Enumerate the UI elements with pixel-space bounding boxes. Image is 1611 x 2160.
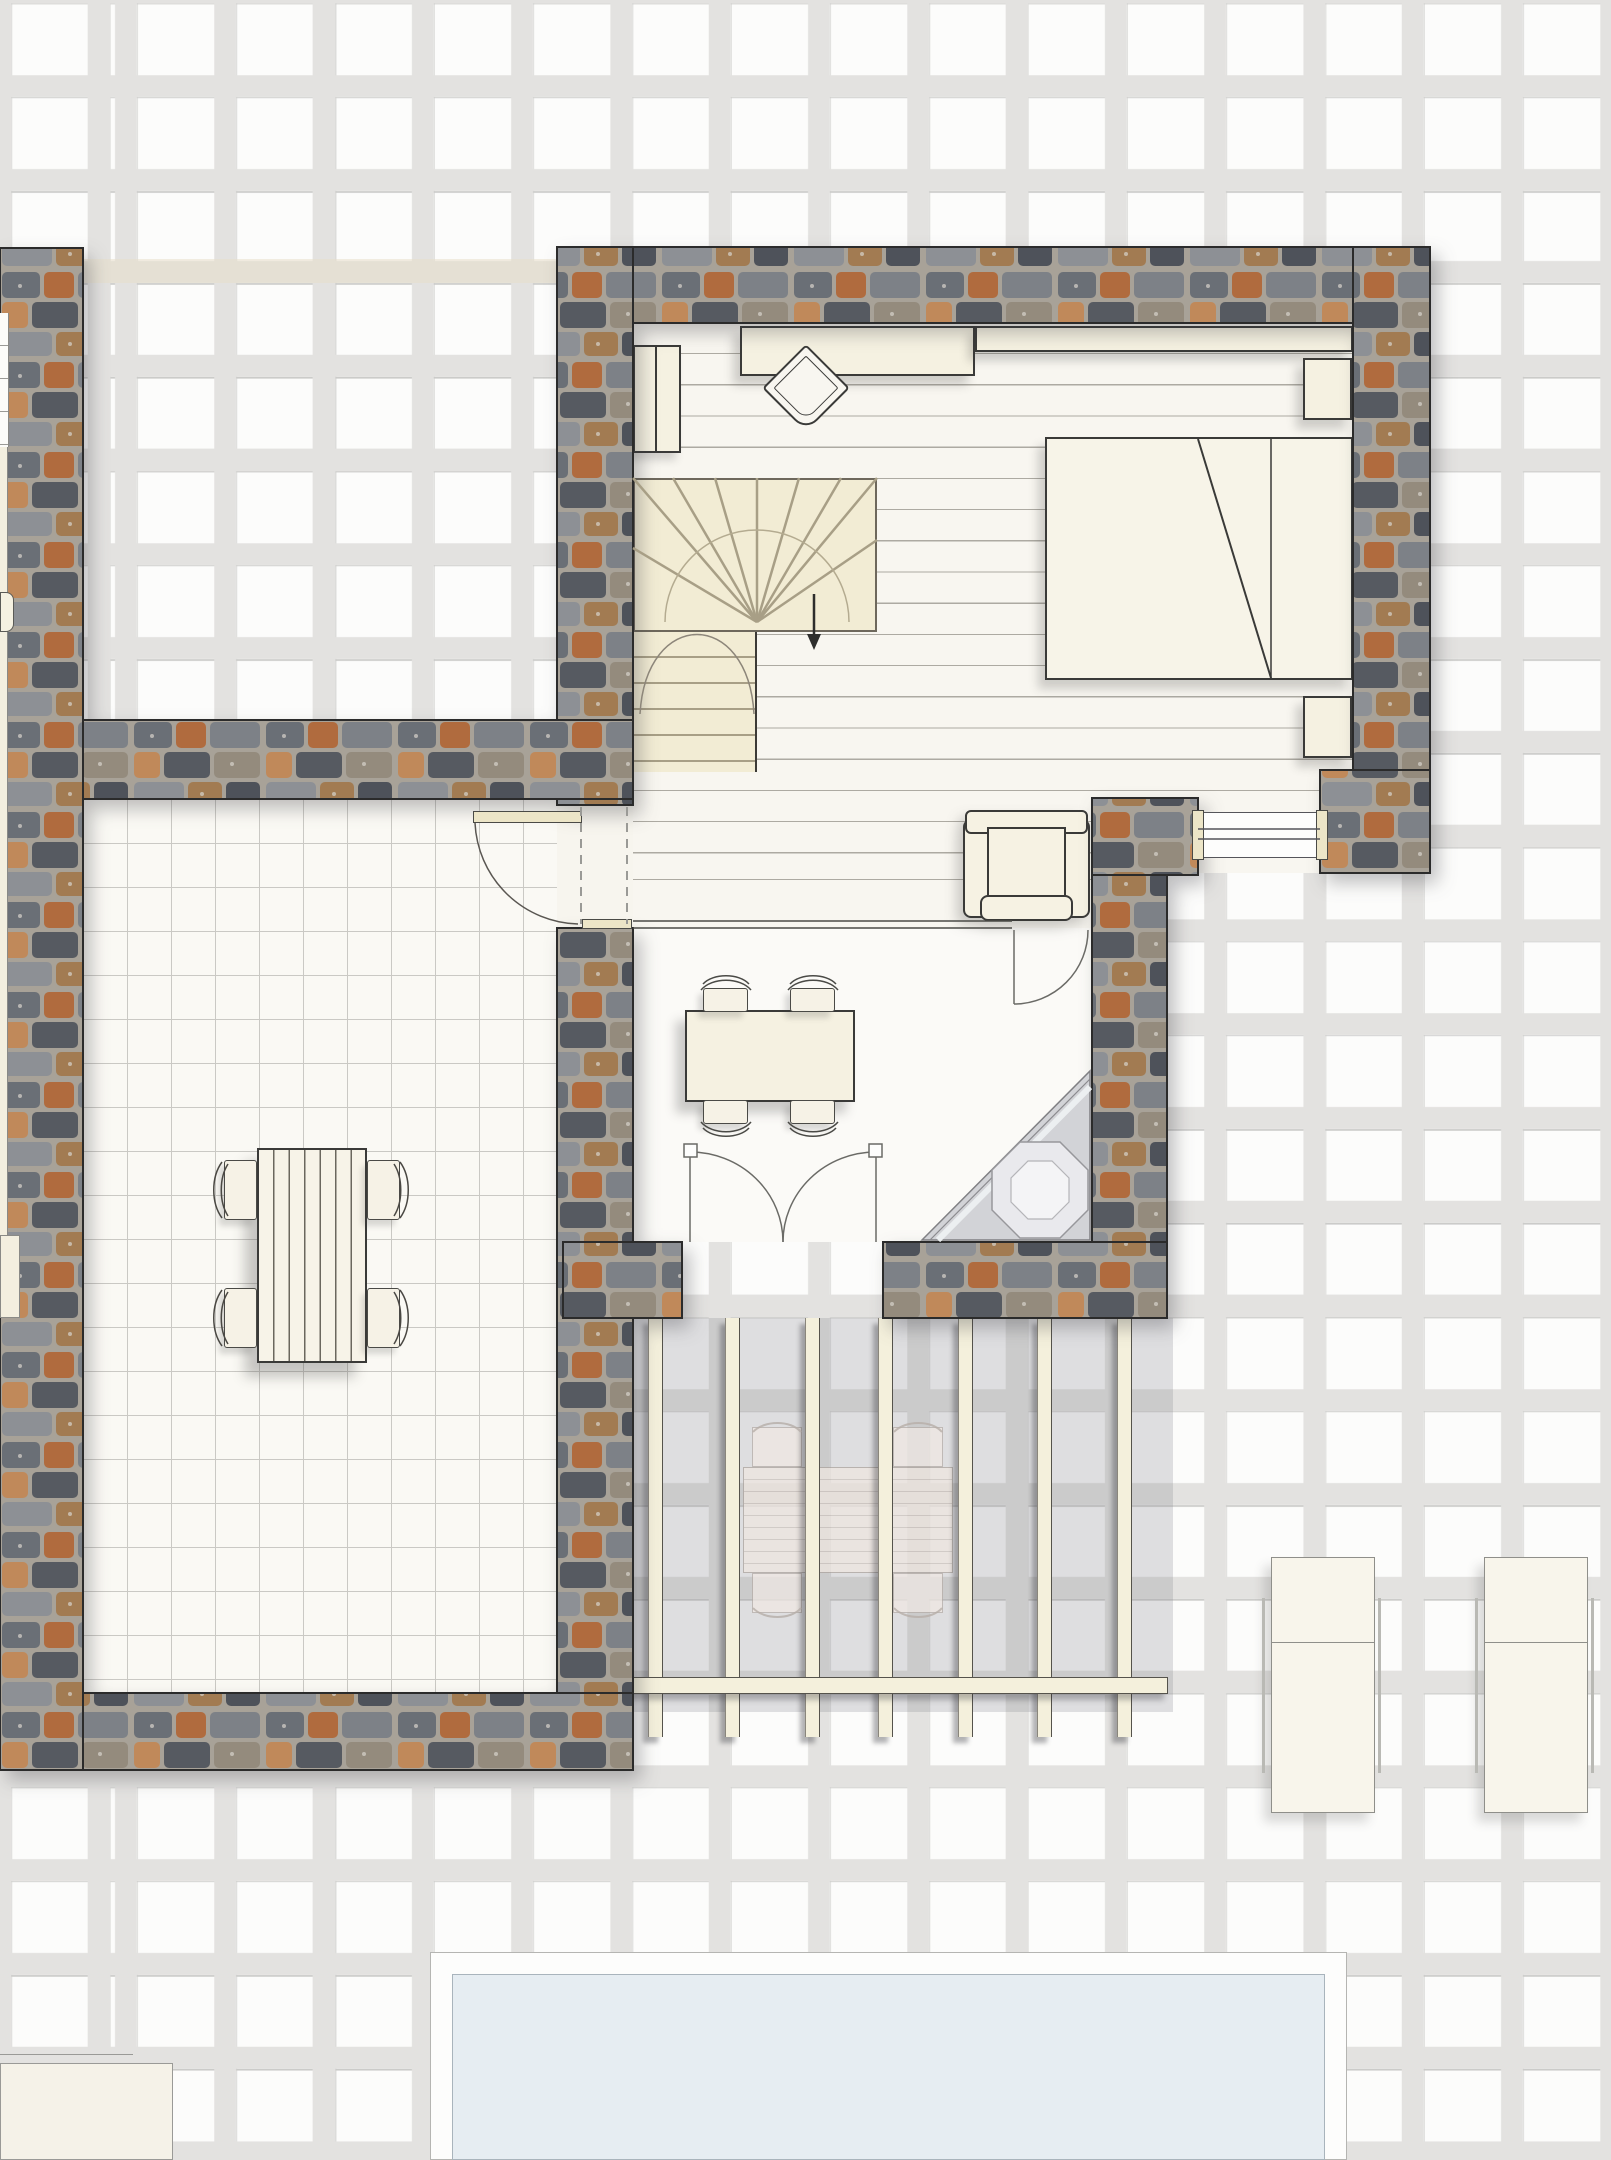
neighbor-interior-sliver: [0, 447, 8, 1235]
dining-chair: [790, 988, 835, 1012]
armchair-seat: [987, 827, 1066, 903]
stairs-winder: [633, 478, 877, 632]
neighbor-interior-sliver: [0, 313, 9, 447]
paver-path-tint: [0, 259, 557, 283]
outdoor-chair: [752, 1427, 802, 1467]
dining-chair: [703, 1100, 748, 1124]
dining-chair: [790, 1100, 835, 1124]
pergola-beam: [878, 1318, 893, 1737]
courtyard-chair: [367, 1160, 400, 1220]
courtyard-chair: [224, 1160, 257, 1220]
corner-slab-edge: [0, 2054, 133, 2055]
dining-threshold: [582, 919, 632, 929]
window-jamb: [1316, 810, 1328, 860]
lounger-rail: [1591, 1598, 1594, 1773]
neighbor-fixture: [0, 592, 14, 632]
bed: [1045, 437, 1353, 680]
pergola-beam: [805, 1318, 820, 1737]
armchair-cushion: [980, 895, 1073, 921]
dining-table: [685, 1010, 855, 1102]
outdoor-chair: [893, 1573, 943, 1613]
pergola-beam: [958, 1318, 973, 1737]
courtyard-door-leaf: [473, 811, 582, 823]
courtyard-table: [257, 1148, 367, 1363]
outdoor-chair: [893, 1427, 943, 1467]
wardrobe: [633, 345, 681, 453]
window-jamb: [1192, 810, 1204, 860]
courtyard-chair: [367, 1288, 400, 1348]
armchair: [963, 810, 1090, 923]
outdoor-chair: [752, 1573, 802, 1613]
floor-plan: [0, 0, 1611, 2160]
dining-chair: [703, 988, 748, 1012]
outdoor-table: [743, 1467, 953, 1573]
stairs-straight-run: [633, 632, 757, 772]
courtyard-chair: [224, 1288, 257, 1348]
window: [1198, 812, 1320, 858]
lounger-rail: [1475, 1598, 1478, 1773]
sun-lounger: [1271, 1557, 1375, 1813]
pergola-beam: [725, 1318, 740, 1737]
neighbor-interior-room: [0, 1235, 20, 1318]
lounger-rail: [1262, 1598, 1265, 1773]
pergola-beam: [648, 1318, 663, 1737]
nightstand: [1303, 358, 1352, 420]
pergola-beam: [1117, 1318, 1132, 1737]
pool-water: [452, 1974, 1325, 2160]
nightstand: [1303, 696, 1352, 758]
doorway-floor: [557, 805, 633, 928]
wall-shelf: [975, 326, 1353, 352]
desk: [740, 326, 975, 376]
corner-slab: [0, 2063, 173, 2160]
pergola-cross-beam: [632, 1677, 1168, 1694]
lounger-rail: [1378, 1598, 1381, 1773]
sun-lounger: [1484, 1557, 1588, 1813]
pergola-beam: [1037, 1318, 1052, 1737]
